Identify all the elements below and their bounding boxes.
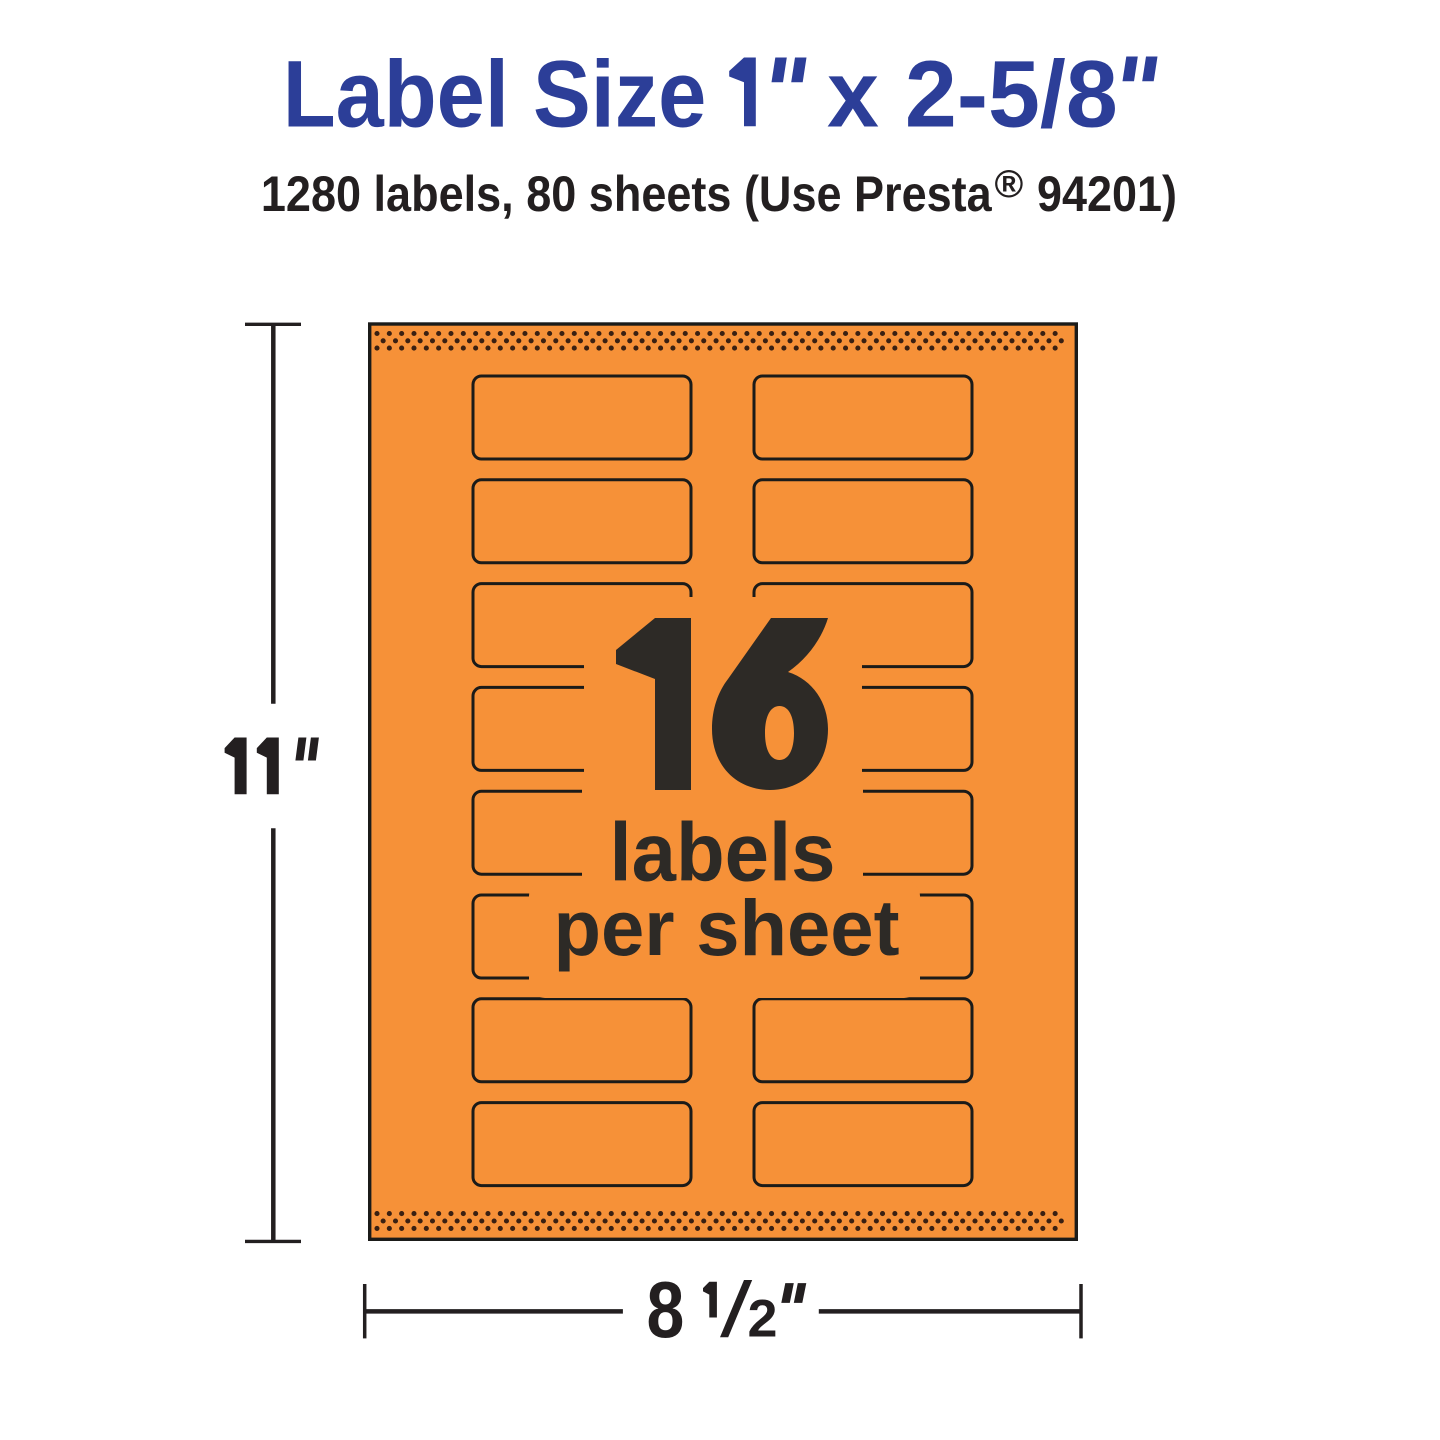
svg-text:1280 labels, 80 sheets (Use Pr: 1280 labels, 80 sheets (Use Presta — [261, 166, 993, 222]
svg-text:x 2-5/8: x 2-5/8 — [827, 41, 1118, 147]
svg-text:8: 8 — [647, 1265, 685, 1354]
svg-text:94201): 94201) — [1037, 166, 1177, 222]
svg-text:2: 2 — [748, 1289, 778, 1348]
svg-text:®: ® — [995, 163, 1024, 206]
svg-text:per sheet: per sheet — [554, 883, 900, 972]
svg-text:Label Size: Label Size — [283, 41, 707, 147]
